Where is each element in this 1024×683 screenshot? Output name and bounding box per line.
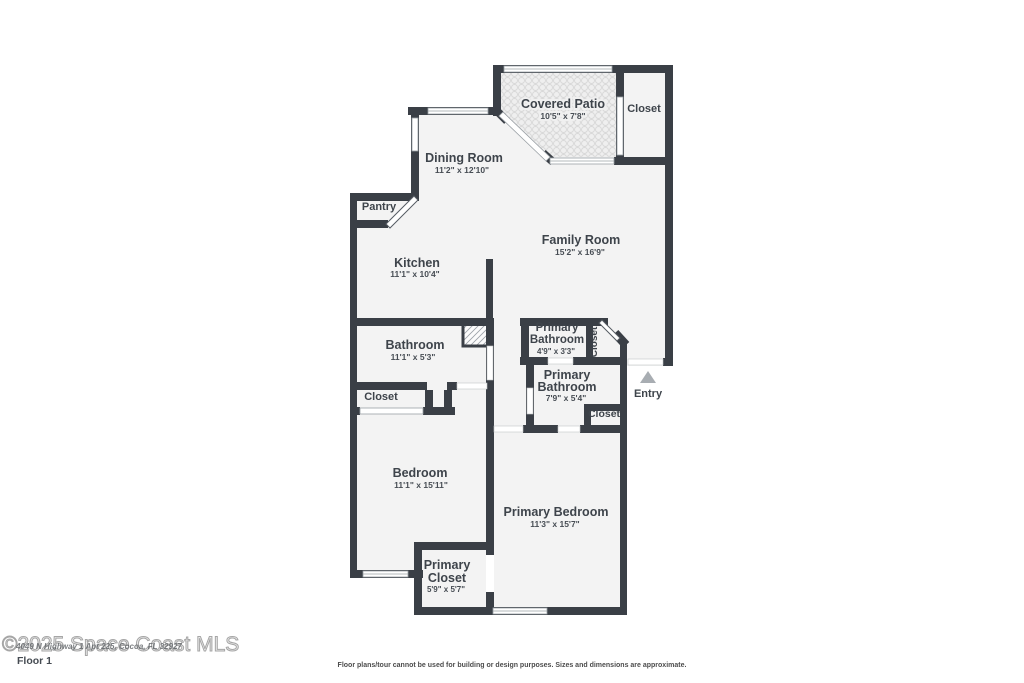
label-bedroom-closet: Closet xyxy=(364,391,398,403)
dims-primary-bathroom: 7'9" x 5'4" xyxy=(546,393,586,403)
dims-primary-bathroom-small: 4'9" x 3'3" xyxy=(537,347,575,356)
dims-primary-closet: 5'9" x 5'7" xyxy=(427,585,465,594)
label-kitchen: Kitchen xyxy=(394,256,440,270)
dims-bedroom: 11'1" x 15'11" xyxy=(394,480,448,490)
label-closet-top-right: Closet xyxy=(627,103,661,115)
floor-plan-canvas: Covered Patio 10'5" x 7'8" Closet Dining… xyxy=(0,0,1024,683)
label-family-room: Family Room xyxy=(542,233,621,247)
label-pantry: Pantry xyxy=(362,201,397,213)
label-bedroom: Bedroom xyxy=(393,466,448,480)
label-covered-patio: Covered Patio xyxy=(521,97,605,111)
label-hall-closet: Closet xyxy=(589,326,600,357)
disclaimer-text: Floor plans/tour cannot be used for buil… xyxy=(0,662,1024,669)
label-suite-closet: Closet xyxy=(588,408,621,420)
label-bathroom: Bathroom xyxy=(385,338,444,352)
label-primary-closet-2: Closet xyxy=(428,571,467,585)
label-primary-bathroom-2: Bathroom xyxy=(537,380,596,394)
label-primary-bathroom-small-2: Bathroom xyxy=(530,334,584,346)
dims-bathroom: 11'1" x 5'3" xyxy=(391,352,436,362)
label-primary-closet-1: Primary xyxy=(424,558,471,572)
dims-family-room: 15'2" x 16'9" xyxy=(555,247,605,257)
dims-kitchen: 11'1" x 10'4" xyxy=(390,269,439,279)
label-primary-bedroom: Primary Bedroom xyxy=(504,505,609,519)
entry-arrow-icon xyxy=(640,371,656,383)
dims-dining-room: 11'2" x 12'10" xyxy=(435,165,489,175)
label-dining-room: Dining Room xyxy=(425,151,503,165)
dims-primary-bedroom: 11'3" x 15'7" xyxy=(530,519,579,529)
watermark-address: 4049 N Highway 1 Apt 225, Cocoa, FL 3292… xyxy=(16,642,182,651)
label-primary-bathroom-small-1: Primary xyxy=(536,322,579,334)
label-entry: Entry xyxy=(634,388,663,400)
dims-covered-patio: 10'5" x 7'8" xyxy=(540,111,585,121)
